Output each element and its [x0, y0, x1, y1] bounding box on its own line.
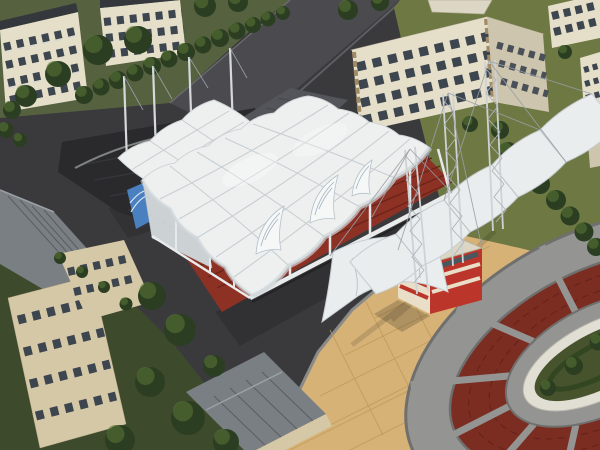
tree	[124, 26, 152, 54]
tree	[143, 57, 161, 75]
tree	[177, 43, 195, 61]
tree	[338, 0, 358, 20]
tree	[138, 282, 166, 310]
tree	[45, 61, 71, 87]
tree	[93, 79, 110, 96]
rooftop	[428, 0, 492, 14]
tree	[261, 12, 276, 27]
bush	[561, 207, 580, 226]
tree	[195, 37, 212, 54]
tree	[127, 65, 144, 82]
tree	[565, 357, 583, 375]
tree	[164, 314, 196, 346]
tree	[276, 6, 290, 20]
tree	[229, 23, 246, 40]
tree	[245, 17, 261, 33]
hedge-bush	[120, 298, 133, 311]
tree	[75, 86, 93, 104]
tree	[135, 367, 165, 397]
tree	[558, 45, 572, 59]
tree	[491, 121, 509, 139]
render-stage	[0, 0, 600, 450]
tree	[13, 133, 27, 147]
tree	[171, 401, 205, 435]
tree	[211, 29, 229, 47]
tree	[203, 355, 225, 377]
tree	[3, 101, 21, 119]
hedge-bush	[76, 266, 88, 278]
hedge-bush	[98, 281, 110, 293]
aerial-render	[0, 0, 600, 450]
tree	[83, 35, 113, 65]
bush	[546, 190, 566, 210]
hedge-bush	[54, 252, 66, 264]
bush	[575, 223, 594, 242]
tree	[161, 51, 178, 68]
tree	[540, 380, 556, 396]
